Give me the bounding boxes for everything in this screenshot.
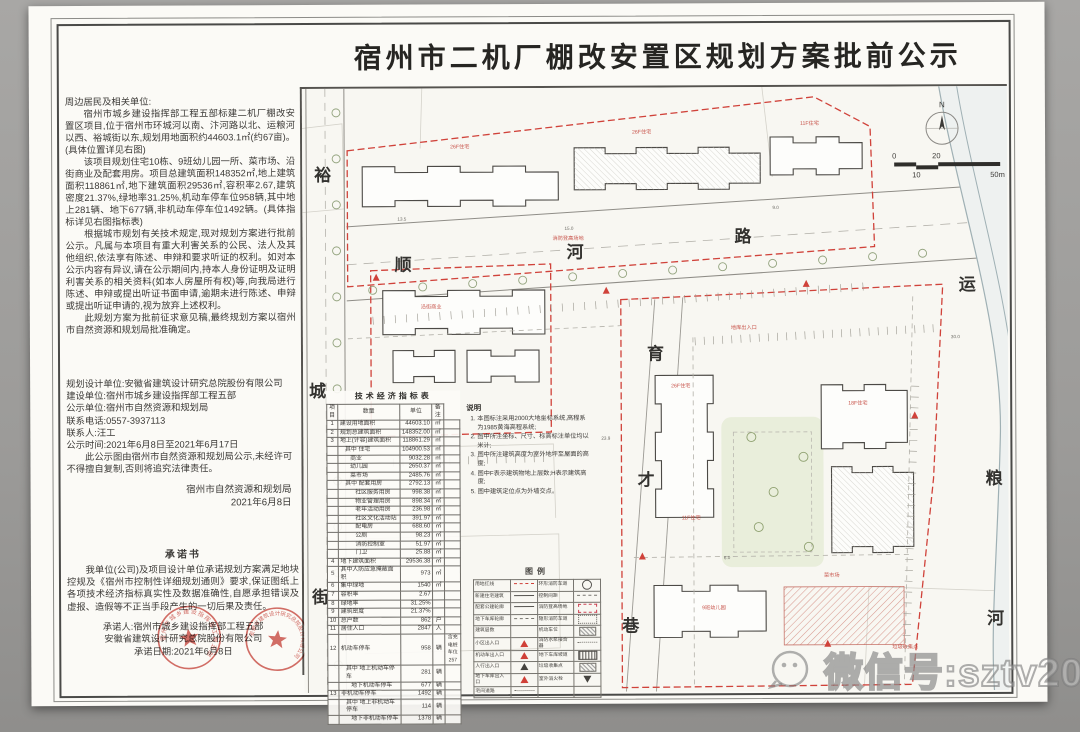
table-row: 老年活动用房236.98㎡ — [327, 506, 460, 515]
legend-label: 宅间道路 — [474, 686, 511, 698]
table-row: 其中 地上非机动车停车114辆 — [328, 699, 461, 716]
legend-symbol-trired — [510, 650, 537, 662]
note-item: 图中F表示建筑物地上层数;H表示建筑高度; — [478, 469, 591, 487]
kindergarten-block — [784, 586, 904, 645]
info-line: 公示单位:宿州市自然资源和规划局 — [66, 401, 298, 414]
table-header: 数量 — [337, 404, 400, 420]
seal-right: 安徽省建筑设计研究总院股份有限公司 — [243, 605, 311, 673]
info-line: 联系电话:0557-3937113 — [66, 414, 298, 427]
table-row: 门卫25.88㎡ — [327, 549, 460, 558]
svg-text:0: 0 — [892, 151, 896, 160]
table-header: 项目 — [327, 404, 338, 420]
road-label-char: 运 — [959, 275, 976, 294]
plan-annotation: 垃圾收集点 — [892, 642, 918, 650]
commitment-title: 承诺书 — [67, 545, 299, 561]
info-line: 联系人:汪工 — [66, 426, 298, 439]
legend-label: 室外消火栓 — [537, 673, 574, 686]
table-row: 4地下建筑面积29536.38㎡ — [327, 558, 460, 567]
note-item: 图中建筑定位点为外墙交点。 — [478, 488, 591, 497]
svg-text:N: N — [939, 100, 945, 109]
legend-symbol-line — [510, 603, 537, 615]
legend-table: 用地红线环形消防车道新建住宅建筑控制间距配套公建轮廓消防登高场地地下车库轮廓隐形… — [473, 579, 602, 699]
table-header: 单位 — [400, 404, 432, 420]
indicator-table-grid: 项目数量单位备注 1建设用地面积44603.10㎡2规划总建筑面积148352.… — [326, 403, 461, 724]
legend-row: 用地红线环形消防车道 — [473, 579, 600, 591]
legend-label: 机动车位 — [537, 625, 574, 637]
svg-text:50m: 50m — [990, 170, 1005, 179]
notice-paragraphs: 宿州市城乡建设指挥部工程五部标建二机厂棚改安置区项目,位于宿州市环城河以南、汴河… — [65, 107, 296, 336]
legend-symbol-trired — [510, 673, 537, 686]
legend-symbol-circle — [573, 579, 600, 591]
table-header: 备注 — [432, 404, 444, 420]
table-row: 11居住人口2847人 — [328, 625, 461, 634]
plan-annotation: 26F住宅 — [671, 381, 690, 389]
legend-symbol-blank — [574, 686, 601, 698]
page-title: 宿州市二机厂棚改安置区规划方案批前公示 — [314, 34, 1002, 77]
plan-annotation: 沿街商业 — [421, 302, 442, 310]
legend-symbol-hatch — [574, 625, 601, 637]
indicator-table-title: 技术经济指标表 — [326, 390, 460, 402]
legend-symbol-dot — [574, 637, 601, 650]
legend-label: 地下车库轮廓 — [474, 614, 511, 626]
table-row: 地下机动车停车677辆 — [328, 681, 461, 690]
legend-label: 地下车库出入口 — [474, 673, 511, 686]
legend-row: 人行出入口垃圾收集点 — [474, 661, 601, 673]
legend-symbol-hatch — [574, 661, 601, 673]
info-lines: 规划设计单位:安徽省建筑设计研究总院股份有限公司建设单位:宿州市城乡建设指挥部工… — [66, 377, 298, 451]
notice-paragraph: 此规划方案为批前征求意见稿,最终规划方案以宿州市自然资源和规划局批准确定。 — [66, 311, 296, 336]
legend-label: 小区出入口 — [474, 637, 511, 650]
legend-label: 控制间距 — [537, 591, 574, 603]
plan-annotation: 地库出入口 — [731, 323, 757, 331]
legend-label: 地下车库坡道 — [537, 650, 574, 662]
info-line: 规划设计单位:安徽省建筑设计研究总院股份有限公司 — [66, 377, 298, 390]
legend-symbol-dash — [574, 591, 601, 603]
legend-block: 图例 用地红线环形消防车道新建住宅建筑控制间距配套公建轮廓消防登高场地地下车库轮… — [473, 566, 602, 699]
legend-label — [537, 686, 574, 698]
table-row: 菜市场2485.76㎡ — [327, 472, 460, 481]
legend-label: 隐形消防车道 — [537, 614, 574, 626]
svg-text:20: 20 — [932, 151, 940, 160]
note-item: 图中所注建筑高度为室外地坪至屋面的高度; — [477, 451, 590, 469]
legend-row: 宅间道路 — [474, 686, 601, 698]
legend-label: 环形消防车道 — [537, 579, 574, 591]
table-row: 幼儿园2650.37㎡ — [327, 463, 460, 472]
notes-list: 本图标注采用2000大地坐标系统,高程系为1985黄海高程系统;图中所注坐标、尺… — [466, 415, 590, 497]
svg-text:30.0: 30.0 — [951, 334, 960, 339]
road-label-char: 巷 — [621, 616, 640, 636]
legend-row: 建筑层数机动车位 — [474, 625, 601, 637]
note-item: 本图标注采用2000大地坐标系统,高程系为1985黄海高程系统; — [477, 415, 590, 433]
table-row: 社区文化活动站391.97㎡ — [327, 515, 460, 524]
legend-label: 消防登高场地 — [537, 602, 574, 614]
scanned-notice-page: { "title": "宿州市二机厂棚改安置区规划方案批前公示", "notic… — [0, 0, 1080, 732]
svg-text:6.0: 6.0 — [724, 555, 731, 560]
plan-annotation: 消防登高场地 — [552, 234, 583, 242]
project-info-block: 规划设计单位:安徽省建筑设计研究总院股份有限公司建设单位:宿州市城乡建设指挥部工… — [66, 377, 298, 476]
svg-text:23.9: 23.9 — [601, 436, 610, 441]
notice-text-block: 周边居民及相关单位: 宿州市城乡建设指挥部工程五部标建二机厂棚改安置区项目,位于… — [65, 95, 296, 336]
road-label-char: 河 — [567, 243, 584, 262]
table-row: 3地上(计容)建筑面积118861.29㎡ — [327, 437, 460, 446]
road-label-char: 路 — [734, 226, 752, 246]
table-row: 5其中人防应急掩蔽面积973㎡ — [327, 566, 460, 583]
legend-row: 小区出入口消防水泵接合器 — [474, 637, 601, 651]
publish-date: 2021年6月8日 — [67, 496, 292, 510]
legend-symbol-trired — [510, 637, 537, 650]
legend-label: 人行出入口 — [474, 662, 511, 674]
legend-symbol-tri — [510, 662, 537, 674]
table-row: 消防控制室51.97㎡ — [327, 540, 460, 549]
legend-label: 配套公建轮廓 — [474, 603, 511, 615]
table-row: 地下非机动车停车1378辆 — [328, 715, 461, 724]
legend-symbol-dotrect — [574, 614, 601, 626]
road-label-char: 育 — [647, 343, 664, 363]
legend-row: 地下车库轮廓隐形消防车道 — [474, 614, 601, 626]
legend-label: 新建住宅建筑 — [474, 591, 511, 603]
table-row: 1建设用地面积44603.10㎡ — [327, 420, 460, 429]
agency-name: 宿州市自然资源和规划局 — [67, 483, 292, 497]
plan-annotation: 26F住宅 — [632, 128, 651, 136]
notice-paragraph: 根据城市规划有关技术规定,现对规划方案进行批前公示。凡属与本项目有重大利害关系的… — [65, 227, 295, 312]
legend-row: 机动车出入口地下车库坡道 — [474, 650, 601, 662]
info-line: 公示时间:2021年6月8日至2021年6月17日 — [66, 438, 298, 451]
svg-text:9.0: 9.0 — [772, 205, 779, 210]
info-line: 建设单位:宿州市城乡建设指挥部工程五部 — [66, 389, 298, 402]
table-row: 物业管理用房898.34㎡ — [327, 497, 460, 506]
legend-symbol-dashrect — [574, 602, 601, 614]
table-row: 13非机动车停车1492辆 — [328, 690, 461, 699]
plan-annotation: 9班幼儿园 — [702, 603, 726, 611]
legend-label: 消防水泵接合器 — [537, 637, 574, 650]
legend-symbol-line — [510, 591, 537, 603]
legend-row: 配套公建轮廓消防登高场地 — [474, 602, 601, 614]
road-label-char: 裕 — [314, 165, 331, 185]
legend-row: 地下车库出入口室外消火栓 — [474, 673, 601, 687]
legend-symbol-ramp — [574, 650, 601, 662]
legend-row: 新建住宅建筑控制间距 — [474, 591, 601, 603]
table-row: 其中 住宅104900.53㎡ — [327, 446, 460, 455]
legend-symbol-dot — [510, 686, 537, 698]
plan-annotation: 18F住宅 — [848, 399, 867, 407]
plan-annotation: 菜市场 — [824, 571, 840, 579]
svg-text:13.5: 13.5 — [397, 217, 406, 222]
table-row: 其中 地上机动车停车281辆 — [328, 665, 461, 682]
paper-sheet: 宿州市二机厂棚改安置区规划方案批前公示 周边居民及相关单位: 宿州市城乡建设指挥… — [28, 2, 1047, 706]
legend-symbol-dash — [510, 614, 537, 626]
table-row: 2规划总建筑面积148352.00㎡ — [327, 429, 460, 438]
seal-left: 宿州市城乡建设指挥部工程五部 — [154, 602, 224, 672]
notice-paragraph: 宿州市城乡建设指挥部工程五部标建二机厂棚改安置区项目,位于宿州市环城河以南、汴河… — [65, 107, 295, 156]
legend-symbol-blank — [510, 626, 537, 638]
road-label-char: 城 — [309, 382, 326, 401]
road-label-char: 顺 — [395, 256, 412, 275]
legend-title: 图例 — [473, 566, 601, 578]
plan-annotation: 26F住宅 — [450, 142, 469, 150]
legend-label: 垃圾收集点 — [537, 661, 574, 673]
notice-salutation: 周边居民及相关单位: — [65, 95, 295, 108]
table-row: 商业9032.28㎡ — [327, 454, 460, 463]
road-label-char: 河 — [987, 609, 1004, 628]
notes-title: 说明 — [466, 402, 590, 414]
notice-paragraph: 该项目规划住宅10栋、9班幼儿园一所、菜市场、沿街商业及配套用房。项目总建筑面积… — [65, 155, 295, 228]
table-row: 配电房688.60㎡ — [327, 523, 460, 532]
indicator-table: 技术经济指标表 项目数量单位备注 1建设用地面积44603.10㎡2规划总建筑面… — [326, 390, 461, 724]
table-row: 12机动车停车958辆含充电桩车位257 — [328, 634, 461, 666]
plan-annotation: 11F住宅 — [800, 119, 819, 127]
legend-symbol-reddash — [510, 580, 537, 592]
road-label-char: 才 — [638, 469, 655, 489]
legend-label: 用地红线 — [473, 580, 510, 592]
table-row: 社区服务用房998.38㎡ — [327, 489, 460, 498]
notes-block: 说明 本图标注采用2000大地坐标系统,高程系为1985黄海高程系统;图中所注坐… — [466, 402, 590, 498]
legend-label: 建筑层数 — [474, 626, 511, 638]
legend-symbol-tridown — [574, 673, 601, 686]
table-row: 公厕98.23㎡ — [327, 532, 460, 541]
svg-text:15.0: 15.0 — [564, 226, 573, 231]
table-row: 6集中绿地1540㎡ — [327, 582, 460, 591]
central-green-space — [721, 417, 824, 567]
issuing-agency-block: 宿州市自然资源和规划局 2021年6月8日 — [67, 483, 292, 510]
legend-label: 机动车出入口 — [474, 650, 511, 662]
table-row: 其中 配套用房2792.13㎡ — [327, 480, 460, 489]
plan-annotation: 11F住宅 — [682, 513, 701, 521]
note-item: 图中所注坐标、尺寸、标高标注单位均以米计; — [477, 433, 590, 451]
road-label-char: 粮 — [986, 468, 1003, 488]
svg-text:10: 10 — [912, 170, 920, 179]
disclaimer-text: 此公示图由宿州市自然资源和规划局公示,未经许可不得擅自复制,否则将追究法律责任。 — [66, 450, 298, 475]
